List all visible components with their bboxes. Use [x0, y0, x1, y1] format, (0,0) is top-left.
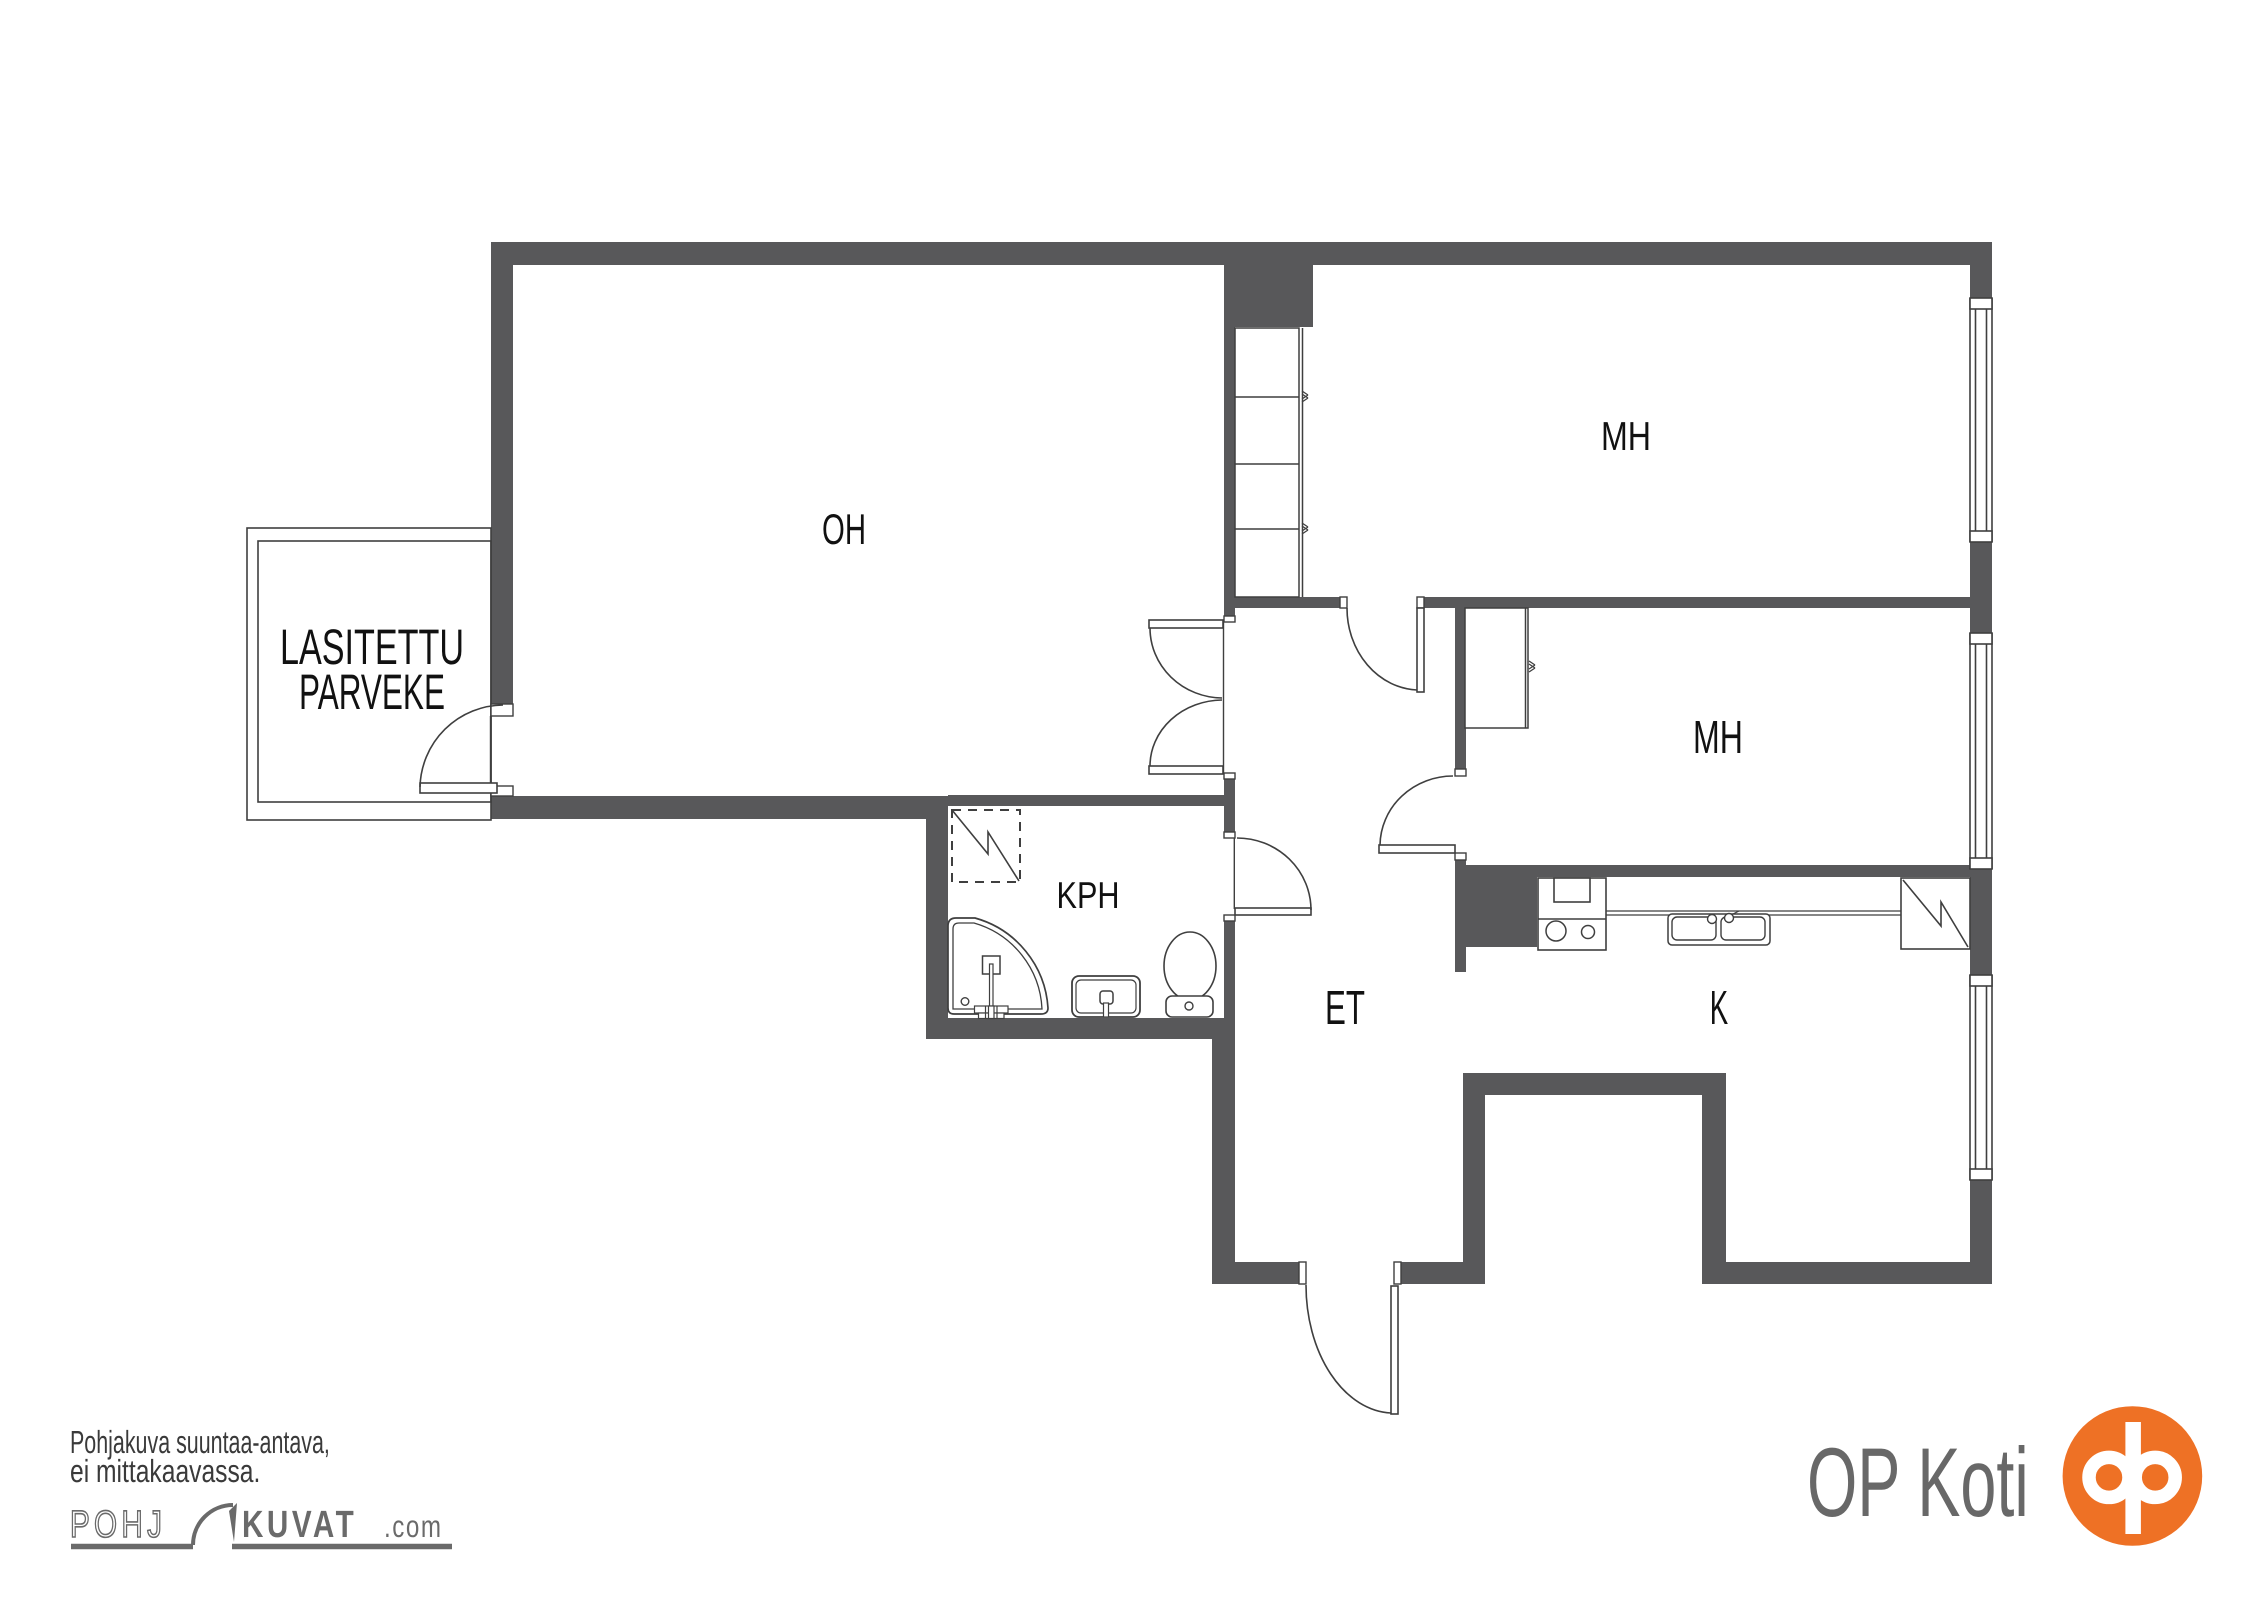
svg-text:POHJ: POHJ — [70, 1504, 166, 1546]
svg-text:K: K — [1710, 982, 1728, 1035]
svg-text:ei mittakaavassa.: ei mittakaavassa. — [70, 1453, 260, 1489]
svg-text:.com: .com — [384, 1509, 443, 1544]
svg-text:OP Koti: OP Koti — [1807, 1427, 2029, 1537]
svg-text:MH: MH — [1693, 711, 1743, 763]
svg-text:KUVAT: KUVAT — [242, 1504, 357, 1546]
svg-text:PARVEKE: PARVEKE — [299, 664, 445, 720]
svg-text:OH: OH — [822, 506, 866, 554]
svg-text:MH: MH — [1601, 413, 1651, 459]
svg-text:ET: ET — [1325, 982, 1365, 1035]
svg-text:KPH: KPH — [1057, 874, 1120, 916]
